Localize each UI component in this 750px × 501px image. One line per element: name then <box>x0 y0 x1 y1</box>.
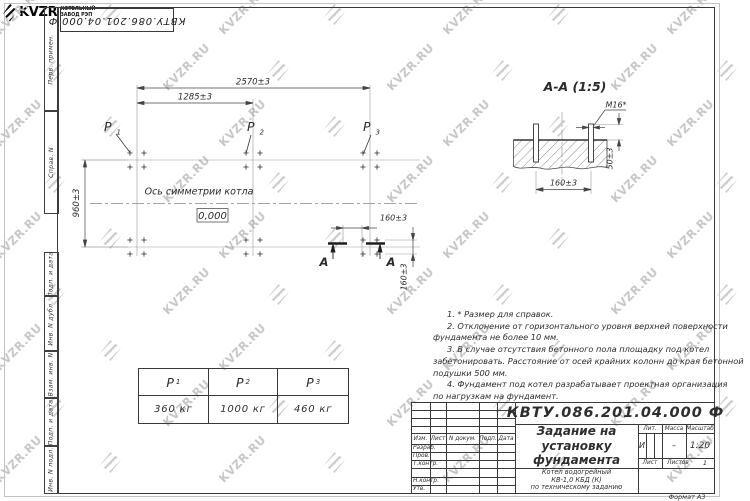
sheets-value: 1 <box>698 458 712 468</box>
subtitle-line: по техническому заданию <box>531 484 623 492</box>
col-podp: Подп. <box>479 433 497 444</box>
plan-view: 2570±3 1285±3 960±3 160±3 160±3 P 1 P 2 … <box>72 78 420 291</box>
load-point-leaders <box>116 134 371 154</box>
note-line: фундамента не более 10 мм. <box>433 332 745 344</box>
doc-number: КВТУ.086.201.04.000 Ф <box>517 402 714 424</box>
drawing-sheet: { "doc_number": "КВТУ.086.201.04.000 Ф",… <box>0 0 750 500</box>
dim-spacing-label: 160±3 <box>550 179 577 188</box>
title-line: Задание на <box>537 424 617 439</box>
section-view: А-А (1:5) М16* 50±3 160±3 <box>514 79 627 194</box>
load-table: P1 P2 P3 360 кг 1000 кг 460 кг <box>138 368 349 424</box>
symmetry-axis-label: Ось симметрии котла <box>145 187 254 198</box>
load-point-p2: P <box>247 119 255 134</box>
lit-value: И <box>638 433 646 458</box>
load-point-p1-sub: 1 <box>117 129 121 137</box>
p-sub: 3 <box>316 378 320 386</box>
anchor-bolt-right <box>589 124 594 162</box>
lit-label: Лит. <box>638 424 662 433</box>
col-izm: Изм. <box>411 433 430 444</box>
mass-label: Масса <box>662 424 686 433</box>
section-letter-left: А <box>319 255 329 269</box>
note-line: 1. * Размер для справок. <box>433 309 745 321</box>
col-ndokum: N докум. <box>446 433 479 444</box>
dim-protrusion-label: 50±3 <box>606 148 615 170</box>
note-line: подушки 500 мм. <box>433 368 745 380</box>
p-label: P <box>306 375 314 390</box>
section-cut-marks <box>328 244 385 260</box>
drawing-subtitle: Котел водогрейный КВ-1,0 КБД (К) по техн… <box>515 468 638 493</box>
row-prov: Пров. <box>413 452 445 460</box>
load-value-p2: 1000 кг <box>209 396 279 423</box>
dim-height-label: 960±3 <box>72 189 82 218</box>
load-value-p3: 460 кг <box>278 396 348 423</box>
load-point-p2-sub: 2 <box>260 129 265 137</box>
load-point-p3: P <box>363 119 371 134</box>
p-label: P <box>236 375 244 390</box>
technical-notes: 1. * Размер для справок. 2. Отклонение о… <box>433 309 745 403</box>
format-label: Формат А3 <box>660 493 714 501</box>
level-mark-value: 0,000 <box>198 211 227 222</box>
plan-axis-lines <box>81 85 420 256</box>
dim-bolt-x-label: 160±3 <box>380 214 407 223</box>
dim-total-label: 2570±3 <box>236 78 270 88</box>
row-razrab: Разраб. <box>413 444 445 452</box>
load-value-p1: 360 кг <box>139 396 209 423</box>
load-table-header-p2: P2 <box>209 369 279 396</box>
drawing-title: Задание на установку фундамента <box>515 424 638 468</box>
note-line: забетонировать. Расстояние от осей крайн… <box>433 356 745 368</box>
dim-half-label: 1285±3 <box>178 93 212 103</box>
load-point-p3-sub: 3 <box>376 129 380 137</box>
col-list: Лист <box>430 433 446 444</box>
dim-bolt-y-label: 160±3 <box>400 263 409 290</box>
note-line: 2. Отклонение от горизонтального уровня … <box>433 321 745 333</box>
scale-label: Масштаб <box>686 424 714 433</box>
load-table-header-p1: P1 <box>139 369 209 396</box>
note-line: по нагрузкам на фундамент. <box>433 391 745 403</box>
bolt-size-label: М16* <box>605 101 626 110</box>
anchor-bolt-left <box>534 124 539 162</box>
title-line: фундамента <box>533 453 620 468</box>
p-sub: 2 <box>246 378 250 386</box>
note-line: 4. Фундамент под котел разрабатывает про… <box>433 379 745 391</box>
load-table-header-p3: P3 <box>278 369 348 396</box>
row-tkontr: Т.контр. <box>413 460 445 468</box>
row-utv: Утв. <box>413 485 445 493</box>
sheets-label: Листов <box>664 458 692 468</box>
row-nkontr: Н.контр. <box>413 477 445 485</box>
section-letter-right: А <box>386 255 396 269</box>
note-line: 3. В случае отсутствия бетонного пола пл… <box>433 344 745 356</box>
title-line: установку <box>541 439 611 454</box>
sheet-label: Лист <box>638 458 662 468</box>
load-point-p1: P <box>104 119 112 134</box>
p-label: P <box>166 375 174 390</box>
plan-dimensions <box>83 86 417 267</box>
p-sub: 1 <box>176 378 180 386</box>
mass-value: – <box>662 433 686 458</box>
scale-value: 1:20 <box>686 433 714 458</box>
col-data: Дата <box>497 433 515 444</box>
section-title: А-А (1:5) <box>543 79 607 94</box>
